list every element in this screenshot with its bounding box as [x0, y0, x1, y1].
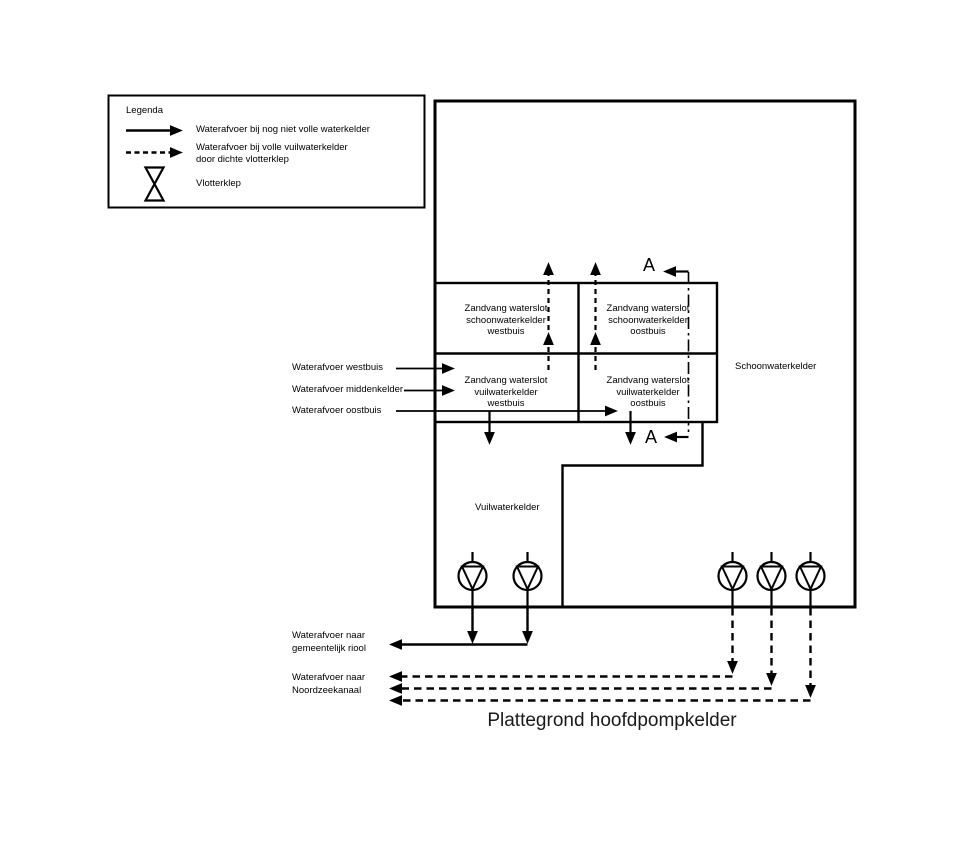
noordzeekanaal-outflow-arrows	[401, 608, 811, 701]
diagram-title: Plattegrond hoofdpompkelder	[412, 710, 812, 732]
pump-icon	[758, 552, 786, 607]
inflow-label-middenkelder: Waterafvoer middenkelder	[292, 384, 403, 396]
pump-icon	[514, 552, 542, 607]
compartment-label-schoonwater-westbuis: Zandvang waterslot schoonwaterkelder wes…	[444, 303, 568, 338]
outflow-label-riool: Waterafvoer naar gemeentelijk riool	[292, 629, 366, 655]
riool-outflow-arrows	[401, 608, 528, 645]
inflow-label-oostbuis: Waterafvoer oostbuis	[292, 405, 381, 417]
legend-title: Legenda	[126, 105, 163, 116]
pump-icon	[719, 552, 747, 607]
inflow-label-westbuis: Waterafvoer westbuis	[292, 362, 383, 374]
outflow-label-noordzeekanaal: Waterafvoer naar Noordzeekanaal	[292, 671, 365, 697]
pump-icon	[797, 552, 825, 607]
compartment-label-vuilwater-oostbuis: Zandvang waterslot vuilwaterkelder oostb…	[586, 375, 710, 410]
region-label-vuilwaterkelder: Vuilwaterkelder	[475, 502, 540, 514]
section-marker-a-top: A	[638, 256, 660, 274]
float-valve-icon	[146, 168, 164, 201]
compartment-label-schoonwater-oostbuis: Zandvang waterslot schoonwaterkelder oos…	[586, 303, 710, 338]
section-marker-a-bottom: A	[640, 428, 662, 446]
compartment-label-vuilwater-westbuis: Zandvang waterslot vuilwaterkelder westb…	[444, 375, 568, 410]
legend-item-dashed-arrow-label: Waterafvoer bij volle vuilwaterkelder do…	[196, 142, 348, 166]
legend-item-float-valve-label: Vlotterklep	[196, 178, 241, 190]
pump-icon	[459, 552, 487, 607]
legend-item-solid-arrow-label: Waterafvoer bij nog niet volle waterkeld…	[196, 124, 370, 136]
kelder-divider-wall	[563, 422, 703, 607]
pumps	[459, 552, 825, 607]
region-label-schoonwaterkelder: Schoonwaterkelder	[735, 361, 816, 373]
plattegrond-diagram: Legenda Waterafvoer bij nog niet volle w…	[0, 0, 964, 850]
